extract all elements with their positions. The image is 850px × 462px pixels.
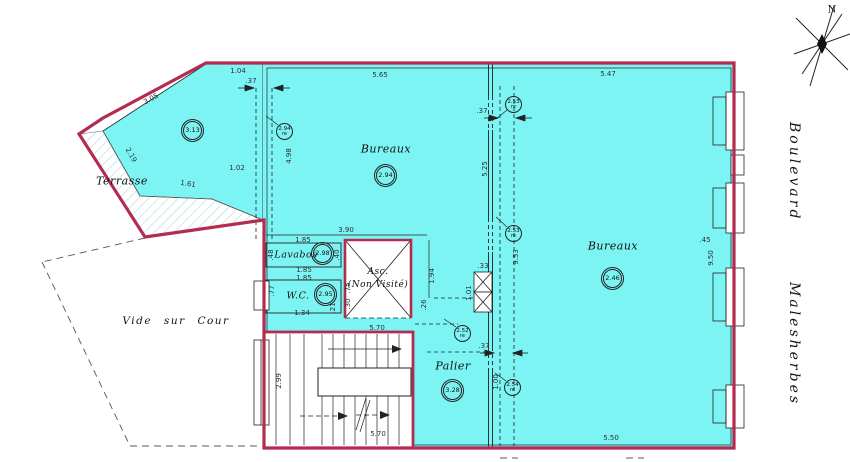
dim-label: .37 <box>478 342 489 350</box>
dim-label: .40 <box>333 249 341 260</box>
dim-label: 1.02 <box>229 164 245 172</box>
dim-label: 1.01 <box>465 285 473 301</box>
dim-label: 5.70 <box>369 324 385 332</box>
floor-plan-drawing <box>0 0 850 462</box>
dim-label: 3.90 <box>338 226 354 234</box>
street-name-malesherbes: Malesherbes <box>786 282 802 406</box>
height-badge-wc: 2.95 <box>316 285 335 304</box>
beam-badge-5: 2.54re <box>504 379 521 396</box>
floor-plan-page: Terrasse Bureaux Bureaux Lavabos W.C. As… <box>0 0 850 462</box>
street-name-boulevard: Boulevard <box>786 122 802 221</box>
dim-label: .33 <box>477 262 488 270</box>
dim-label: .45 <box>699 236 710 244</box>
wc-label: W.C. <box>286 291 309 302</box>
dim-label: .21 <box>329 302 337 313</box>
dim-label: .75 <box>344 282 352 293</box>
dim-label: 9.53 <box>512 249 520 265</box>
dim-label: 5.47 <box>600 70 616 78</box>
dim-label: 9.50 <box>707 250 715 266</box>
dim-label: 1.00 <box>492 374 500 390</box>
dim-label: 4.98 <box>285 148 293 164</box>
lavabos-label: Lavabos <box>274 250 317 261</box>
dim-label: 5.50 <box>603 434 619 442</box>
north-letter: N <box>828 5 837 16</box>
dim-label: .48 <box>267 249 275 260</box>
elevator-label: Asc. <box>367 267 388 277</box>
palier-label: Palier <box>435 360 470 373</box>
dim-label: 1.85 <box>296 274 312 282</box>
dim-label: .37 <box>245 77 256 85</box>
height-badge-top-left: 3.13 <box>183 121 202 140</box>
beam-badge-3: 2.53re <box>505 225 522 242</box>
dim-label: 1.85 <box>296 266 312 274</box>
dim-label: 1.85 <box>295 236 311 244</box>
elevator-sublabel: (Non Visité) <box>348 280 409 290</box>
dim-label: .77 <box>268 285 276 296</box>
dim-label: 5.25 <box>481 161 489 177</box>
beam-badge-2: 2.53re <box>505 96 522 113</box>
dim-label: 5.70 <box>370 430 386 438</box>
north-compass <box>794 6 850 86</box>
dim-label: 5.65 <box>372 71 388 79</box>
dim-label: 1.94 <box>428 268 436 284</box>
dim-label: 1.04 <box>230 67 246 75</box>
height-badge-right: 2.46 <box>603 269 622 288</box>
height-badge-palier: 3.28 <box>443 381 462 400</box>
beam-badge-1: 2.94re <box>276 123 293 140</box>
stair-landing <box>318 368 411 396</box>
height-badge-center: 2.94 <box>376 166 395 185</box>
height-badge-lavabos: 2.98 <box>313 244 332 263</box>
beam-badge-4: 2.52re <box>454 325 471 342</box>
dim-label: .37 <box>476 107 487 115</box>
bureaux-center-label: Bureaux <box>361 143 411 156</box>
dim-label: 1.34 <box>294 309 310 317</box>
dim-label: 2.99 <box>275 373 283 389</box>
duct-shaft <box>474 272 492 312</box>
dim-label: .26 <box>420 299 428 310</box>
courtyard-label: Vide sur Cour <box>122 315 229 327</box>
bureaux-right-label: Bureaux <box>588 240 638 253</box>
terrace-label: Terrasse <box>96 175 148 188</box>
dim-label: .30 <box>344 298 352 309</box>
